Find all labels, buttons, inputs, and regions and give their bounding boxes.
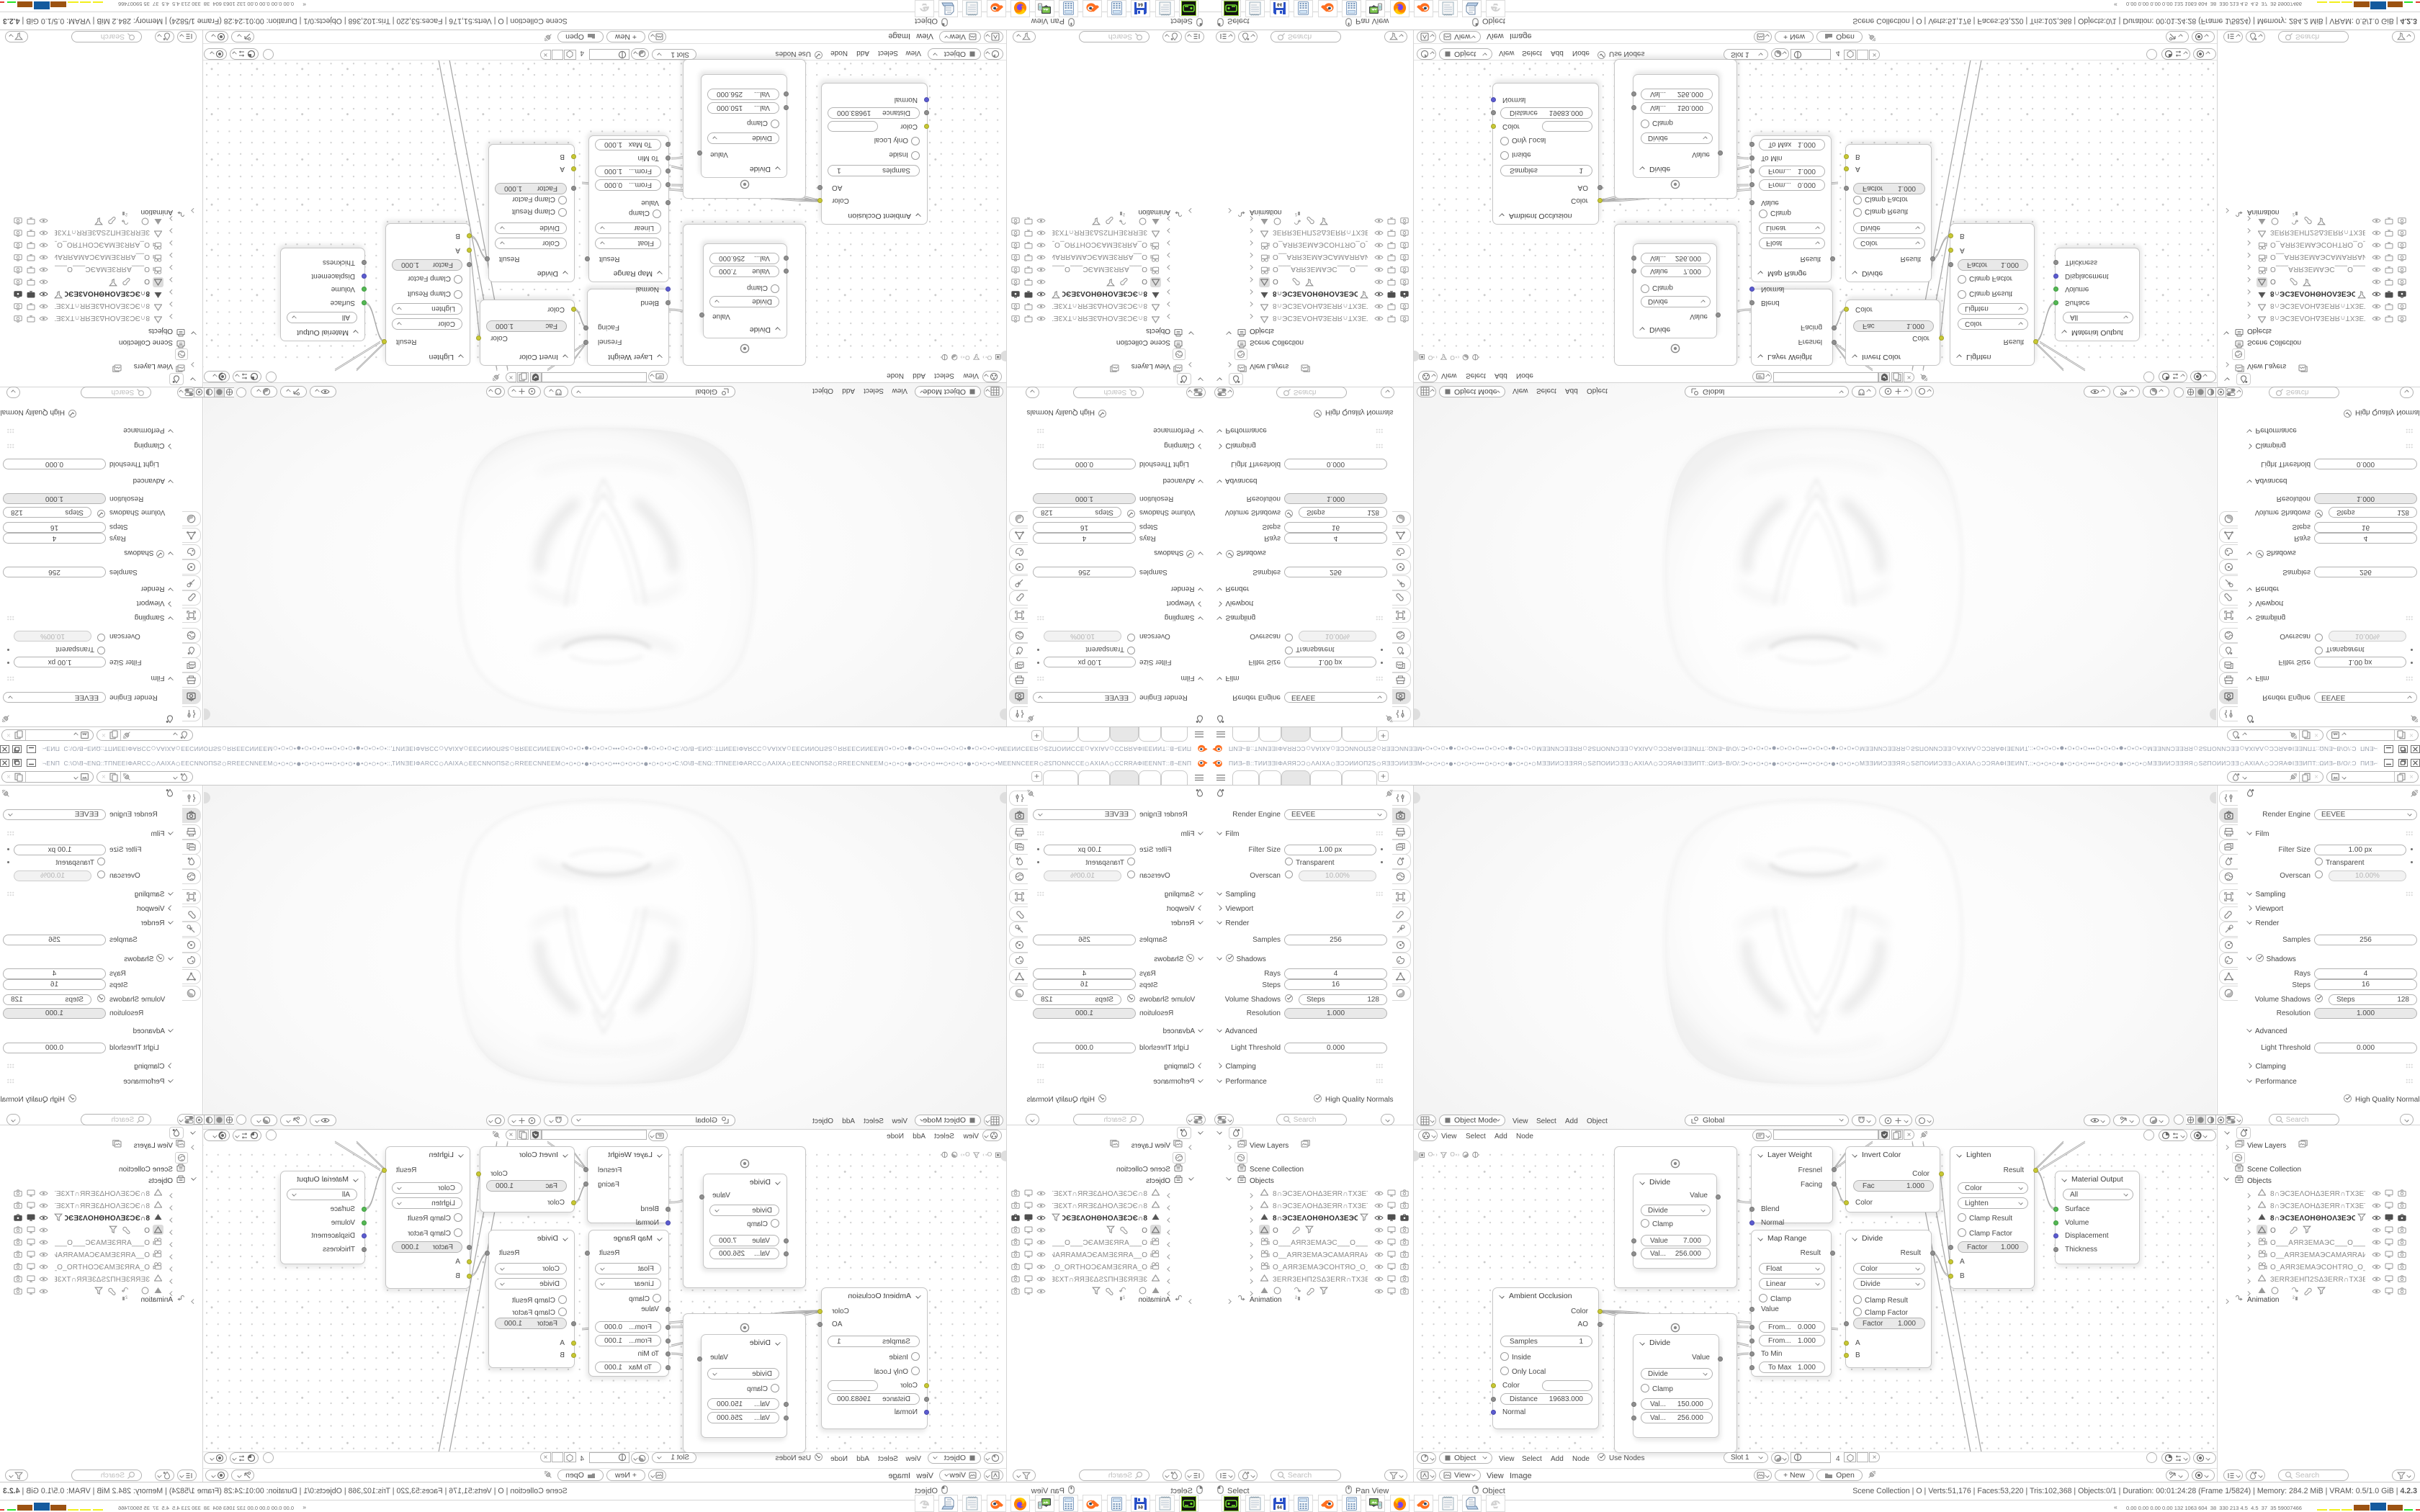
- svg-text:64: 64: [1277, 2, 1282, 6]
- svg-text:64: 64: [1138, 2, 1143, 6]
- svg-text:64: 64: [1138, 1506, 1143, 1511]
- svg-text:64: 64: [1277, 1506, 1282, 1511]
